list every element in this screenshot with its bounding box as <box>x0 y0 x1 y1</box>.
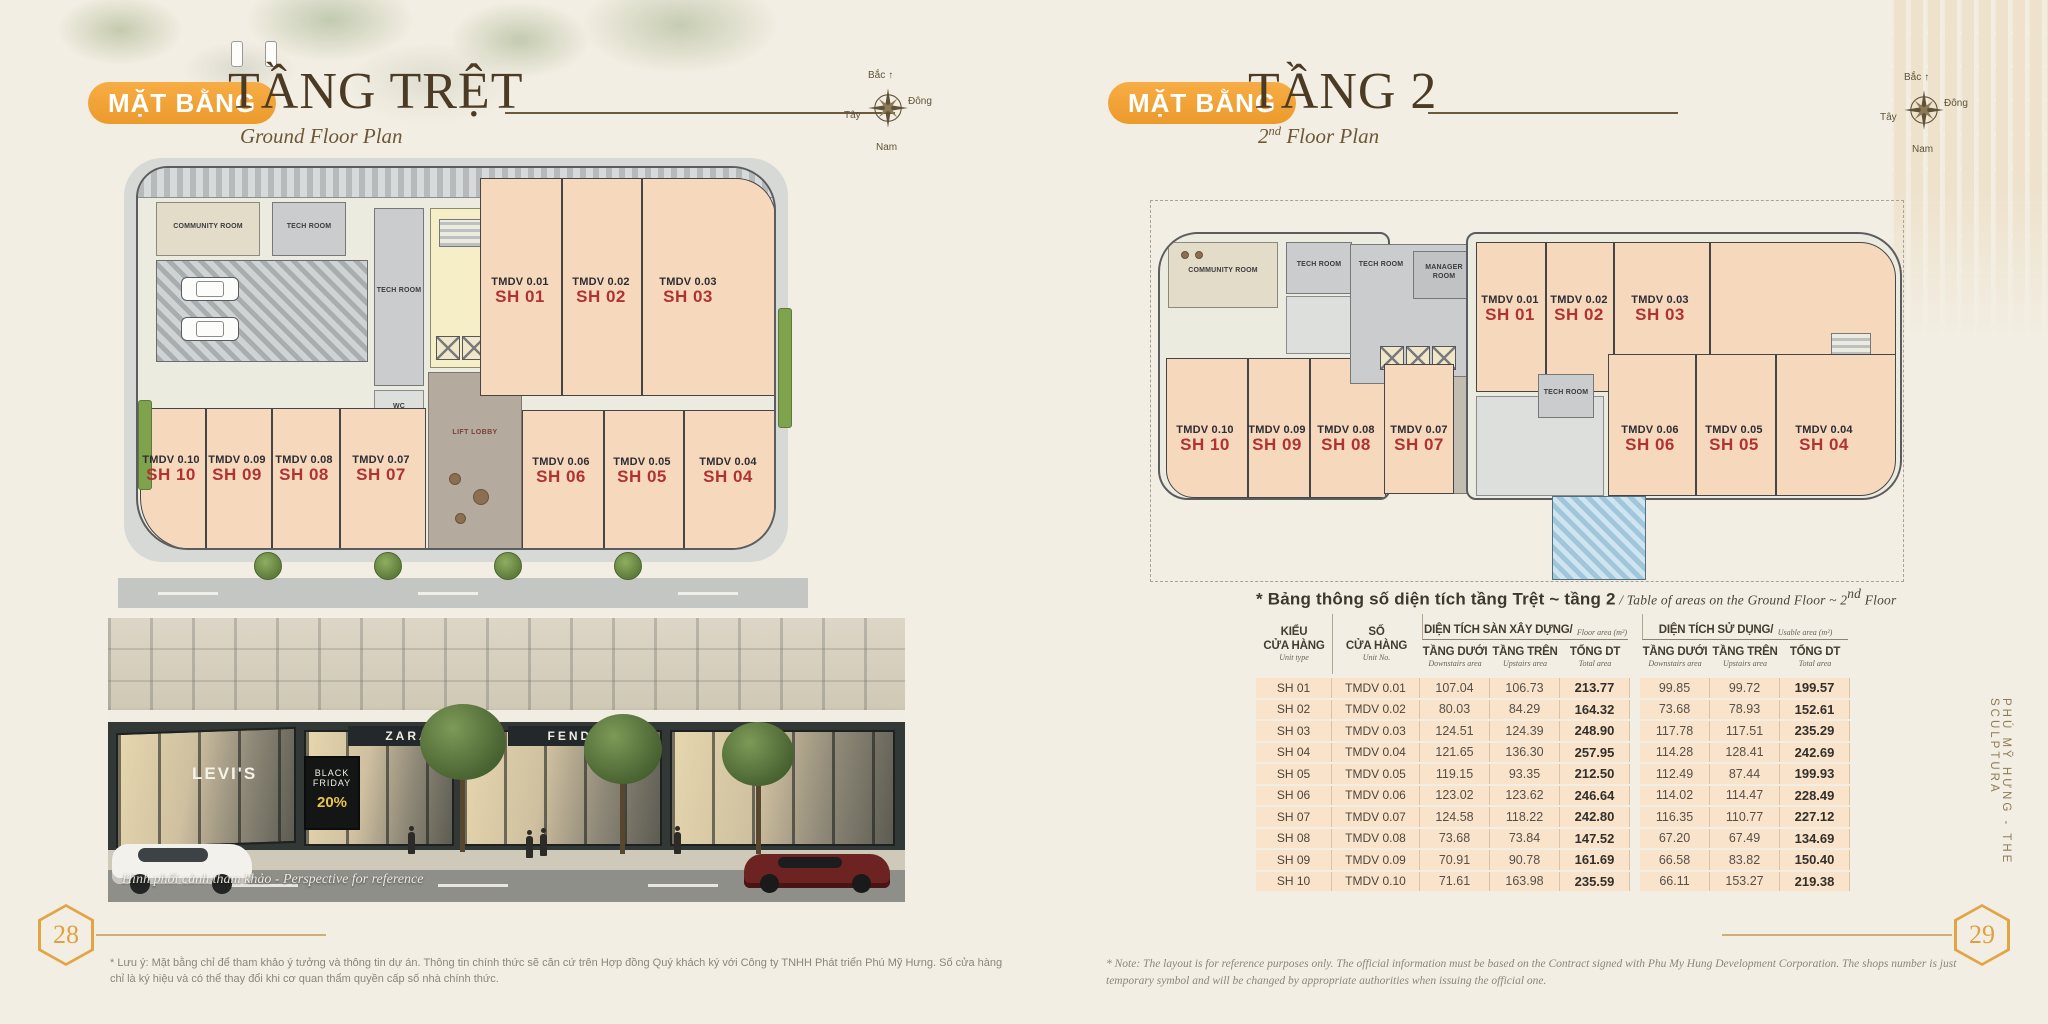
unit-sh: SH 06 <box>523 468 599 487</box>
subtitle-num: 2 <box>1258 124 1269 148</box>
subheader-en: Downstairs area <box>1420 659 1490 668</box>
table-cell: 70.91 <box>1420 850 1490 870</box>
table-cell: 117.51 <box>1710 721 1780 741</box>
table-cell: 93.35 <box>1490 764 1560 784</box>
table-cell: 84.29 <box>1490 700 1560 720</box>
table-cell: 110.77 <box>1710 807 1780 827</box>
page-number-value: 28 <box>38 904 94 966</box>
tech-room-label: TECH ROOM <box>1287 261 1351 270</box>
table-group-spacer <box>1630 678 1640 698</box>
table-cell: SH 03 <box>1256 721 1332 741</box>
table-title: * Bảng thông số diện tích tầng Trệt ~ tầ… <box>1256 586 1896 610</box>
subheader-vi: TỔNG DT <box>1560 646 1630 659</box>
subheader-upstairs: TẦNG TRÊN Upstairs area <box>1490 640 1560 674</box>
group-header-vi: DIỆN TÍCH SỬ DỤNG/ <box>1659 624 1774 637</box>
unit-label-sh04: TMDV 0.04 SH 04 <box>690 456 766 487</box>
unit-sh: SH 09 <box>199 466 275 485</box>
table-cell: SH 04 <box>1256 743 1332 763</box>
table-cell: 83.82 <box>1710 850 1780 870</box>
table-cell: TMDV 0.02 <box>1332 700 1420 720</box>
compass-west-label: Tây <box>844 110 861 121</box>
compass-rose-icon <box>1902 88 1946 132</box>
unit-sh: SH 03 <box>648 288 728 307</box>
tech-room-label: TECH ROOM <box>273 223 345 232</box>
photo-caption: Hình phối cảnh tham khảo - Perspective f… <box>122 872 423 888</box>
tree-icon <box>420 704 506 780</box>
table-cell: 114.28 <box>1640 743 1710 763</box>
unit-sh: SH 08 <box>1308 436 1384 455</box>
car-icon <box>181 277 239 301</box>
subheader-en: Upstairs area <box>1490 659 1560 668</box>
lift-icon <box>436 336 460 360</box>
area-table: KIỂU CỬA HÀNG Unit type SỐ CỬA HÀNG Unit… <box>1256 614 1850 891</box>
table-cell: 67.20 <box>1640 829 1710 849</box>
table-cell: 242.69 <box>1780 743 1850 763</box>
title-rule-right <box>1428 112 1678 114</box>
unit-sh: SH 07 <box>343 466 419 485</box>
compass-left: Bắc Đông Tây Nam <box>842 70 942 162</box>
footnote-left: * Lưu ý: Mặt bằng chỉ để tham khảo ý tưở… <box>110 956 1010 988</box>
storefront-glass <box>116 727 296 849</box>
pedestrian <box>540 834 547 856</box>
footnote-right: * Note: The layout is for reference purp… <box>1106 956 1986 989</box>
table-cell: TMDV 0.07 <box>1332 807 1420 827</box>
table-title-vi: * Bảng thông số diện tích tầng Trệt ~ tầ… <box>1256 590 1616 609</box>
community-room: COMMUNITY ROOM <box>1168 242 1278 308</box>
table-cell: 66.58 <box>1640 850 1710 870</box>
table-cell: 124.51 <box>1420 721 1490 741</box>
unit-sh: SH 05 <box>604 468 680 487</box>
compass-south-label: Nam <box>876 142 897 153</box>
table-title-en-suffix: Floor <box>1861 593 1896 608</box>
table-cell: 87.44 <box>1710 764 1780 784</box>
table-cell: 121.65 <box>1420 743 1490 763</box>
unit-sh: SH 02 <box>1541 306 1617 325</box>
table-cell: TMDV 0.01 <box>1332 678 1420 698</box>
unit-sh: SH 01 <box>1472 306 1548 325</box>
unit-label-sh04: TMDV 0.04 SH 04 <box>1786 424 1862 455</box>
furniture-icon <box>1195 251 1203 259</box>
furniture-icon <box>449 473 461 485</box>
subheader-total: TỔNG DT Total area <box>1560 640 1630 674</box>
wheel <box>852 874 871 893</box>
table-cell: TMDV 0.06 <box>1332 786 1420 806</box>
unit-label-sh07: TMDV 0.07 SH 07 <box>1381 424 1457 455</box>
canopy-slab <box>108 710 905 722</box>
table-cell: 116.35 <box>1640 807 1710 827</box>
car-windows <box>778 857 842 868</box>
table-cell: 199.93 <box>1780 764 1850 784</box>
col-group-floor-area: DIỆN TÍCH SÀN XÂY DỰNG/ Floor area (m²) <box>1422 614 1628 640</box>
tree-icon <box>494 552 522 580</box>
header-vi: CỬA HÀNG <box>1256 640 1332 653</box>
table-cell: 99.72 <box>1710 678 1780 698</box>
table-cell: 123.02 <box>1420 786 1490 806</box>
tree-icon <box>374 552 402 580</box>
table-cell: TMDV 0.04 <box>1332 743 1420 763</box>
second-floor-plan: COMMUNITY ROOM TECH ROOM TECH ROOM MANAG… <box>1150 196 1910 588</box>
table-cell: 114.02 <box>1640 786 1710 806</box>
unit-sh: SH 10 <box>1167 436 1243 455</box>
tech-room: TECH ROOM <box>1286 242 1352 294</box>
compass-north-label: Bắc <box>868 70 893 81</box>
table-cell: TMDV 0.10 <box>1332 872 1420 892</box>
tech-room: TECH ROOM <box>1538 374 1594 418</box>
table-cell: 114.47 <box>1710 786 1780 806</box>
table-group-spacer <box>1630 764 1640 784</box>
subheader-en: Upstairs area <box>1710 659 1780 668</box>
table-body: SH 01TMDV 0.01107.04106.73213.7799.8599.… <box>1256 678 1850 891</box>
page-subtitle-floor2: 2nd Floor Plan <box>1258 124 1379 149</box>
lift-lobby-label: LIFT LOBBY <box>429 429 521 436</box>
unit-label-sh08: TMDV 0.08 SH 08 <box>1308 424 1384 455</box>
unit-label-sh02: TMDV 0.02 SH 02 <box>561 276 641 307</box>
manager-room-label: MANAGER ROOM <box>1414 264 1474 282</box>
compass-north-label: Bắc <box>1904 72 1929 83</box>
unit-sh: SH 04 <box>1786 436 1862 455</box>
community-room: COMMUNITY ROOM <box>156 202 260 256</box>
table-cell: TMDV 0.05 <box>1332 764 1420 784</box>
table-group-spacer <box>1630 807 1640 827</box>
unit-sh: SH 03 <box>1622 306 1698 325</box>
table-cell: 80.03 <box>1420 700 1490 720</box>
table-cell: 242.80 <box>1560 807 1630 827</box>
col-header-unit-type: KIỂU CỬA HÀNG Unit type <box>1256 614 1332 674</box>
road-marking <box>418 592 478 595</box>
col-group-usable-area: DIỆN TÍCH SỬ DỤNG/ Usable area (m²) <box>1642 614 1848 640</box>
street <box>118 578 808 608</box>
table-cell: 107.04 <box>1420 678 1490 698</box>
community-room-label: COMMUNITY ROOM <box>157 223 259 232</box>
table-cell: 124.39 <box>1490 721 1560 741</box>
tree-trunk <box>756 778 761 854</box>
board-line1: BLACK <box>306 768 358 778</box>
table-cell: 123.62 <box>1490 786 1560 806</box>
tech-room-label: TECH ROOM <box>375 287 423 296</box>
subtitle-rest: Floor Plan <box>1281 124 1379 148</box>
tech-room-label: TECH ROOM <box>1351 261 1411 270</box>
compass-east-label: Đông <box>1944 98 1968 109</box>
table-cell: SH 08 <box>1256 829 1332 849</box>
table-cell: 73.68 <box>1420 829 1490 849</box>
landscape-strip <box>778 308 792 428</box>
subheader-vi: TẦNG TRÊN <box>1490 646 1560 659</box>
compass-south-label: Nam <box>1912 144 1933 155</box>
unit-sh: SH 10 <box>133 466 209 485</box>
unit-label-sh10: TMDV 0.10 SH 10 <box>1167 424 1243 455</box>
group-header-vi: DIỆN TÍCH SÀN XÂY DỰNG/ <box>1424 624 1573 637</box>
black-friday-board: BLACK FRIDAY 20% <box>304 756 360 830</box>
table-title-en-sup: nd <box>1847 586 1861 601</box>
unit-label-sh09: TMDV 0.09 SH 09 <box>1239 424 1315 455</box>
unit-sh: SH 05 <box>1696 436 1772 455</box>
table-cell: 99.85 <box>1640 678 1710 698</box>
header-vi: SỐ <box>1333 626 1420 639</box>
table-cell: TMDV 0.03 <box>1332 721 1420 741</box>
floor2-right-wing: TECH ROOM <box>1466 232 1902 500</box>
furniture-icon <box>473 489 489 505</box>
page-number-value: 29 <box>1954 904 2010 966</box>
subheader-en: Total area <box>1560 659 1630 668</box>
table-cell: 235.59 <box>1560 872 1630 892</box>
table-cell: 228.49 <box>1780 786 1850 806</box>
compass-west-label: Tây <box>1880 112 1897 123</box>
table-group-spacer <box>1630 721 1640 741</box>
table-cell: SH 06 <box>1256 786 1332 806</box>
levis-sign: LEVI'S <box>192 764 257 784</box>
project-side-label: PHÚ MỸ HƯNG - THE SCULPTURA <box>1988 698 2012 868</box>
header-en: Unit type <box>1256 653 1332 662</box>
table-header: KIỂU CỬA HÀNG Unit type SỐ CỬA HÀNG Unit… <box>1256 614 1850 674</box>
tree-icon <box>254 552 282 580</box>
car-icon <box>181 317 239 341</box>
unit-label-sh10: TMDV 0.10 SH 10 <box>133 454 209 485</box>
subheader-downstairs: TẦNG DƯỚI Downstairs area <box>1420 640 1490 674</box>
pedestrian <box>408 832 415 854</box>
compass-rose-icon <box>866 86 910 130</box>
road-marking <box>438 884 508 887</box>
tech-room-vertical: TECH ROOM <box>374 208 424 386</box>
table-cell: SH 05 <box>1256 764 1332 784</box>
table-cell: 235.29 <box>1780 721 1850 741</box>
lift-lobby: LIFT LOBBY <box>428 372 522 550</box>
table-cell: 152.61 <box>1780 700 1850 720</box>
unit-label-sh01: TMDV 0.01 SH 01 <box>479 276 561 307</box>
unit-label-sh09: TMDV 0.09 SH 09 <box>199 454 275 485</box>
subheader-en: Total area <box>1780 659 1850 668</box>
table-title-en: Table of areas on the Ground Floor ~ 2 <box>1627 593 1847 608</box>
unit-sh: SH 01 <box>479 288 561 307</box>
table-group-spacer <box>1630 786 1640 806</box>
unit-label-sh02: TMDV 0.02 SH 02 <box>1541 294 1617 325</box>
table-cell: 78.93 <box>1710 700 1780 720</box>
pedestrian <box>674 832 681 854</box>
subheader-downstairs: TẦNG DƯỚI Downstairs area <box>1640 640 1710 674</box>
unit-sh: SH 08 <box>266 466 342 485</box>
subheader-en: Downstairs area <box>1640 659 1710 668</box>
header-vi: CỬA HÀNG <box>1333 640 1420 653</box>
furniture-icon <box>455 513 466 524</box>
table-cell: 161.69 <box>1560 850 1630 870</box>
table-cell: 134.69 <box>1780 829 1850 849</box>
board-line2: FRIDAY <box>306 778 358 788</box>
table-cell: 124.58 <box>1420 807 1490 827</box>
header-en: Unit No. <box>1333 653 1420 662</box>
table-cell: TMDV 0.09 <box>1332 850 1420 870</box>
table-cell: 90.78 <box>1490 850 1560 870</box>
pedestrian <box>526 836 533 858</box>
table-cell: 213.77 <box>1560 678 1630 698</box>
board-discount: 20% <box>306 794 358 811</box>
red-sports-car <box>744 854 890 888</box>
facade-upper-floors <box>108 618 905 714</box>
unit-label-sh06: TMDV 0.06 SH 06 <box>523 456 599 487</box>
table-cell: SH 09 <box>1256 850 1332 870</box>
table-cell: 227.12 <box>1780 807 1850 827</box>
table-cell: 164.32 <box>1560 700 1630 720</box>
compass-east-label: Đông <box>908 96 932 107</box>
table-cell: 248.90 <box>1560 721 1630 741</box>
table-cell: SH 02 <box>1256 700 1332 720</box>
table-group-spacer <box>1630 700 1640 720</box>
ground-floor-plan: COMMUNITY ROOM TECH ROOM TECH ROOM WC LI… <box>118 158 810 616</box>
unit-label-sh03: TMDV 0.03 SH 03 <box>1622 294 1698 325</box>
tech-room: TECH ROOM <box>272 202 346 256</box>
table-cell: 117.78 <box>1640 721 1710 741</box>
unit-label-sh01: TMDV 0.01 SH 01 <box>1472 294 1548 325</box>
unit-sh: SH 06 <box>1612 436 1688 455</box>
table-cell: SH 07 <box>1256 807 1332 827</box>
unit-label-sh06: TMDV 0.06 SH 06 <box>1612 424 1688 455</box>
table-cell: 118.22 <box>1490 807 1560 827</box>
table-cell: 71.61 <box>1420 872 1490 892</box>
subtitle-sup: nd <box>1269 124 1282 138</box>
page-title-ground: TẦNG TRỆT <box>228 66 523 118</box>
table-cell: 73.84 <box>1490 829 1560 849</box>
table-cell: 119.15 <box>1420 764 1490 784</box>
table-cell: 128.41 <box>1710 743 1780 763</box>
subheader-vi: TẦNG DƯỚI <box>1640 646 1710 659</box>
table-cell: 163.98 <box>1490 872 1560 892</box>
table-cell: 246.64 <box>1560 786 1630 806</box>
tree-icon <box>722 722 794 786</box>
unit-label-sh05: TMDV 0.05 SH 05 <box>604 456 680 487</box>
table-cell: 112.49 <box>1640 764 1710 784</box>
table-cell: 153.27 <box>1710 872 1780 892</box>
table-cell: SH 10 <box>1256 872 1332 892</box>
table-cell: 66.11 <box>1640 872 1710 892</box>
compass-right: Bắc Đông Tây Nam <box>1878 72 1978 164</box>
tree-icon <box>584 714 662 784</box>
perspective-photo: LEVI'S ZARA FENDI BLACK FRIDAY 20% Hình … <box>108 618 905 902</box>
tree-trunk <box>460 768 465 852</box>
table-group-spacer <box>1630 850 1640 870</box>
page-number-left: 28 <box>38 904 94 966</box>
page-title-floor2: TẦNG 2 <box>1248 66 1437 118</box>
subheader-vi: TỔNG DT <box>1780 646 1850 659</box>
page-number-rule-right <box>1722 934 1952 936</box>
table-cell: 219.38 <box>1780 872 1850 892</box>
table-cell: SH 01 <box>1256 678 1332 698</box>
unit-label-sh03: TMDV 0.03 SH 03 <box>648 276 728 307</box>
header-vi: KIỂU <box>1256 626 1332 639</box>
table-cell: 150.40 <box>1780 850 1850 870</box>
group-header-en: Usable area (m²) <box>1778 628 1833 637</box>
table-cell: 67.49 <box>1710 829 1780 849</box>
subheader-total: TỔNG DT Total area <box>1780 640 1850 674</box>
tree-icon <box>614 552 642 580</box>
table-cell: 199.57 <box>1780 678 1850 698</box>
unit-label-sh08: TMDV 0.08 SH 08 <box>266 454 342 485</box>
road-marking <box>648 884 718 887</box>
floor2-core: TECH ROOM MANAGER ROOM <box>1350 244 1480 384</box>
unit-sh: SH 09 <box>1239 436 1315 455</box>
unit-label-sh07: TMDV 0.07 SH 07 <box>343 454 419 485</box>
tree-trunk <box>620 774 625 854</box>
subheader-vi: TẦNG DƯỚI <box>1420 646 1490 659</box>
furniture-icon <box>1181 251 1189 259</box>
car-windows <box>138 848 208 862</box>
community-room-label: COMMUNITY ROOM <box>1169 267 1277 276</box>
tech-room-label: TECH ROOM <box>1539 389 1593 398</box>
table-cell: 257.95 <box>1560 743 1630 763</box>
table-cell: 73.68 <box>1640 700 1710 720</box>
table-group-spacer <box>1630 829 1640 849</box>
table-cell: 136.30 <box>1490 743 1560 763</box>
unit-label-sh05: TMDV 0.05 SH 05 <box>1696 424 1772 455</box>
group-header-en: Floor area (m²) <box>1577 628 1627 637</box>
atrium-skylight <box>1552 496 1646 580</box>
unit-sh: SH 04 <box>690 468 766 487</box>
road-marking <box>678 592 738 595</box>
page-number-right: 29 <box>1954 904 2010 966</box>
table-title-divider: / <box>1616 593 1627 608</box>
wheel <box>760 874 779 893</box>
page-subtitle-ground: Ground Floor Plan <box>240 124 403 149</box>
table-cell: 212.50 <box>1560 764 1630 784</box>
ground-building: COMMUNITY ROOM TECH ROOM TECH ROOM WC LI… <box>136 166 776 550</box>
table-cell: 106.73 <box>1490 678 1560 698</box>
table-group-spacer <box>1630 743 1640 763</box>
table-group-spacer <box>1630 872 1640 892</box>
unit-sh: SH 07 <box>1381 436 1457 455</box>
subheader-upstairs: TẦNG TRÊN Upstairs area <box>1710 640 1780 674</box>
table-cell: TMDV 0.08 <box>1332 829 1420 849</box>
page-number-rule-left <box>96 934 326 936</box>
col-header-unit-no: SỐ CỬA HÀNG Unit No. <box>1332 614 1420 674</box>
table-cell: 147.52 <box>1560 829 1630 849</box>
parking-ramp <box>156 260 368 362</box>
unit-sh: SH 02 <box>561 288 641 307</box>
road-marking <box>158 592 218 595</box>
hex-pattern-decoration <box>1892 0 2048 340</box>
subheader-vi: TẦNG TRÊN <box>1710 646 1780 659</box>
title-rule-left <box>505 112 895 114</box>
